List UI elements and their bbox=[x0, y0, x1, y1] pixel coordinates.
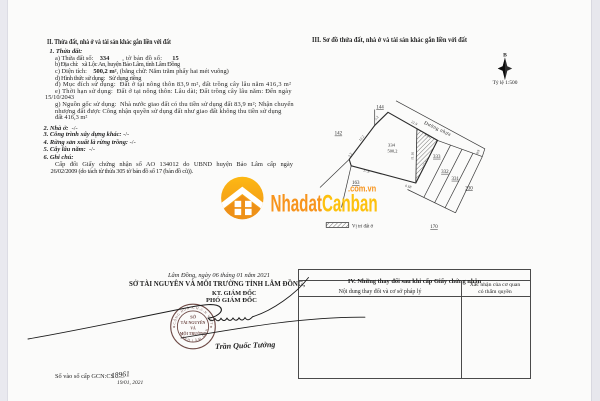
svg-text:.com.vn: .com.vn bbox=[348, 184, 376, 194]
svg-text:NhadatCanban: NhadatCanban bbox=[271, 191, 378, 217]
